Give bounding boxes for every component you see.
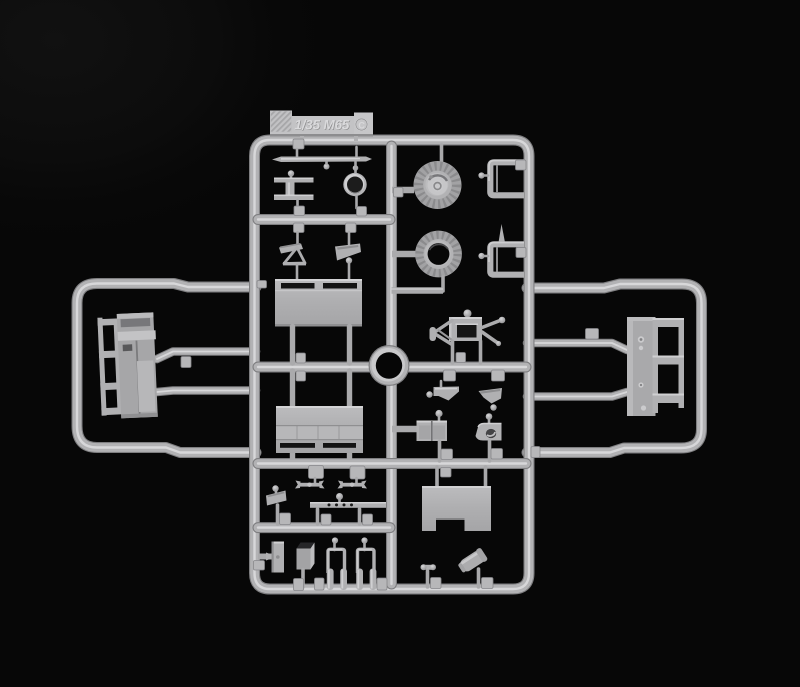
svg-text:1/35 M65: 1/35 M65 [294, 117, 349, 132]
svg-text:C: C [358, 121, 365, 131]
